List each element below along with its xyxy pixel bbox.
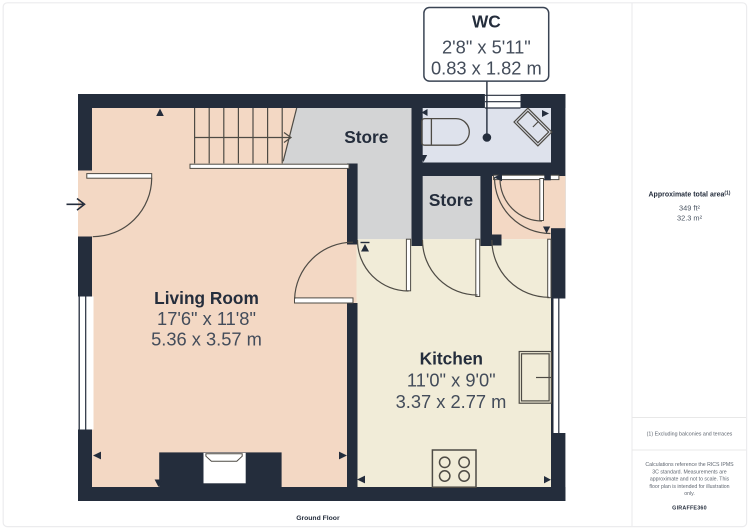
svg-text:17'6" x 11'8": 17'6" x 11'8"	[157, 308, 256, 329]
svg-text:2'8" x 5'11": 2'8" x 5'11"	[442, 36, 531, 57]
svg-text:Ground Floor: Ground Floor	[296, 515, 340, 522]
svg-text:Kitchen: Kitchen	[420, 348, 483, 368]
svg-text:0.83 x 1.82 m: 0.83 x 1.82 m	[431, 58, 542, 79]
svg-text:floor plan is intended for ill: floor plan is intended for illustration	[649, 484, 729, 490]
svg-text:3C standard. Measurements are: 3C standard. Measurements are	[652, 469, 727, 475]
svg-text:approximate and not to scale.: approximate and not to scale. This	[650, 477, 730, 483]
svg-text:5.36 x 3.57 m: 5.36 x 3.57 m	[151, 328, 262, 349]
svg-text:GIRAFFE360: GIRAFFE360	[672, 506, 707, 512]
svg-text:Calculations reference the RIC: Calculations reference the RICS IPMS	[645, 462, 734, 468]
svg-text:Approximate total area(1): Approximate total area(1)	[649, 190, 731, 198]
svg-text:Living Room: Living Room	[154, 288, 259, 308]
svg-text:Store: Store	[429, 190, 474, 210]
svg-text:Store: Store	[344, 127, 389, 147]
svg-text:11'0" x 9'0": 11'0" x 9'0"	[407, 370, 496, 391]
svg-text:(1) Excluding balconies and te: (1) Excluding balconies and terraces	[647, 432, 733, 438]
svg-text:349 ft²: 349 ft²	[679, 204, 700, 213]
svg-text:3.37 x 2.77 m: 3.37 x 2.77 m	[396, 391, 507, 412]
svg-text:32.3 m²: 32.3 m²	[677, 213, 703, 222]
svg-text:only.: only.	[684, 491, 695, 497]
svg-text:WC: WC	[472, 12, 501, 32]
